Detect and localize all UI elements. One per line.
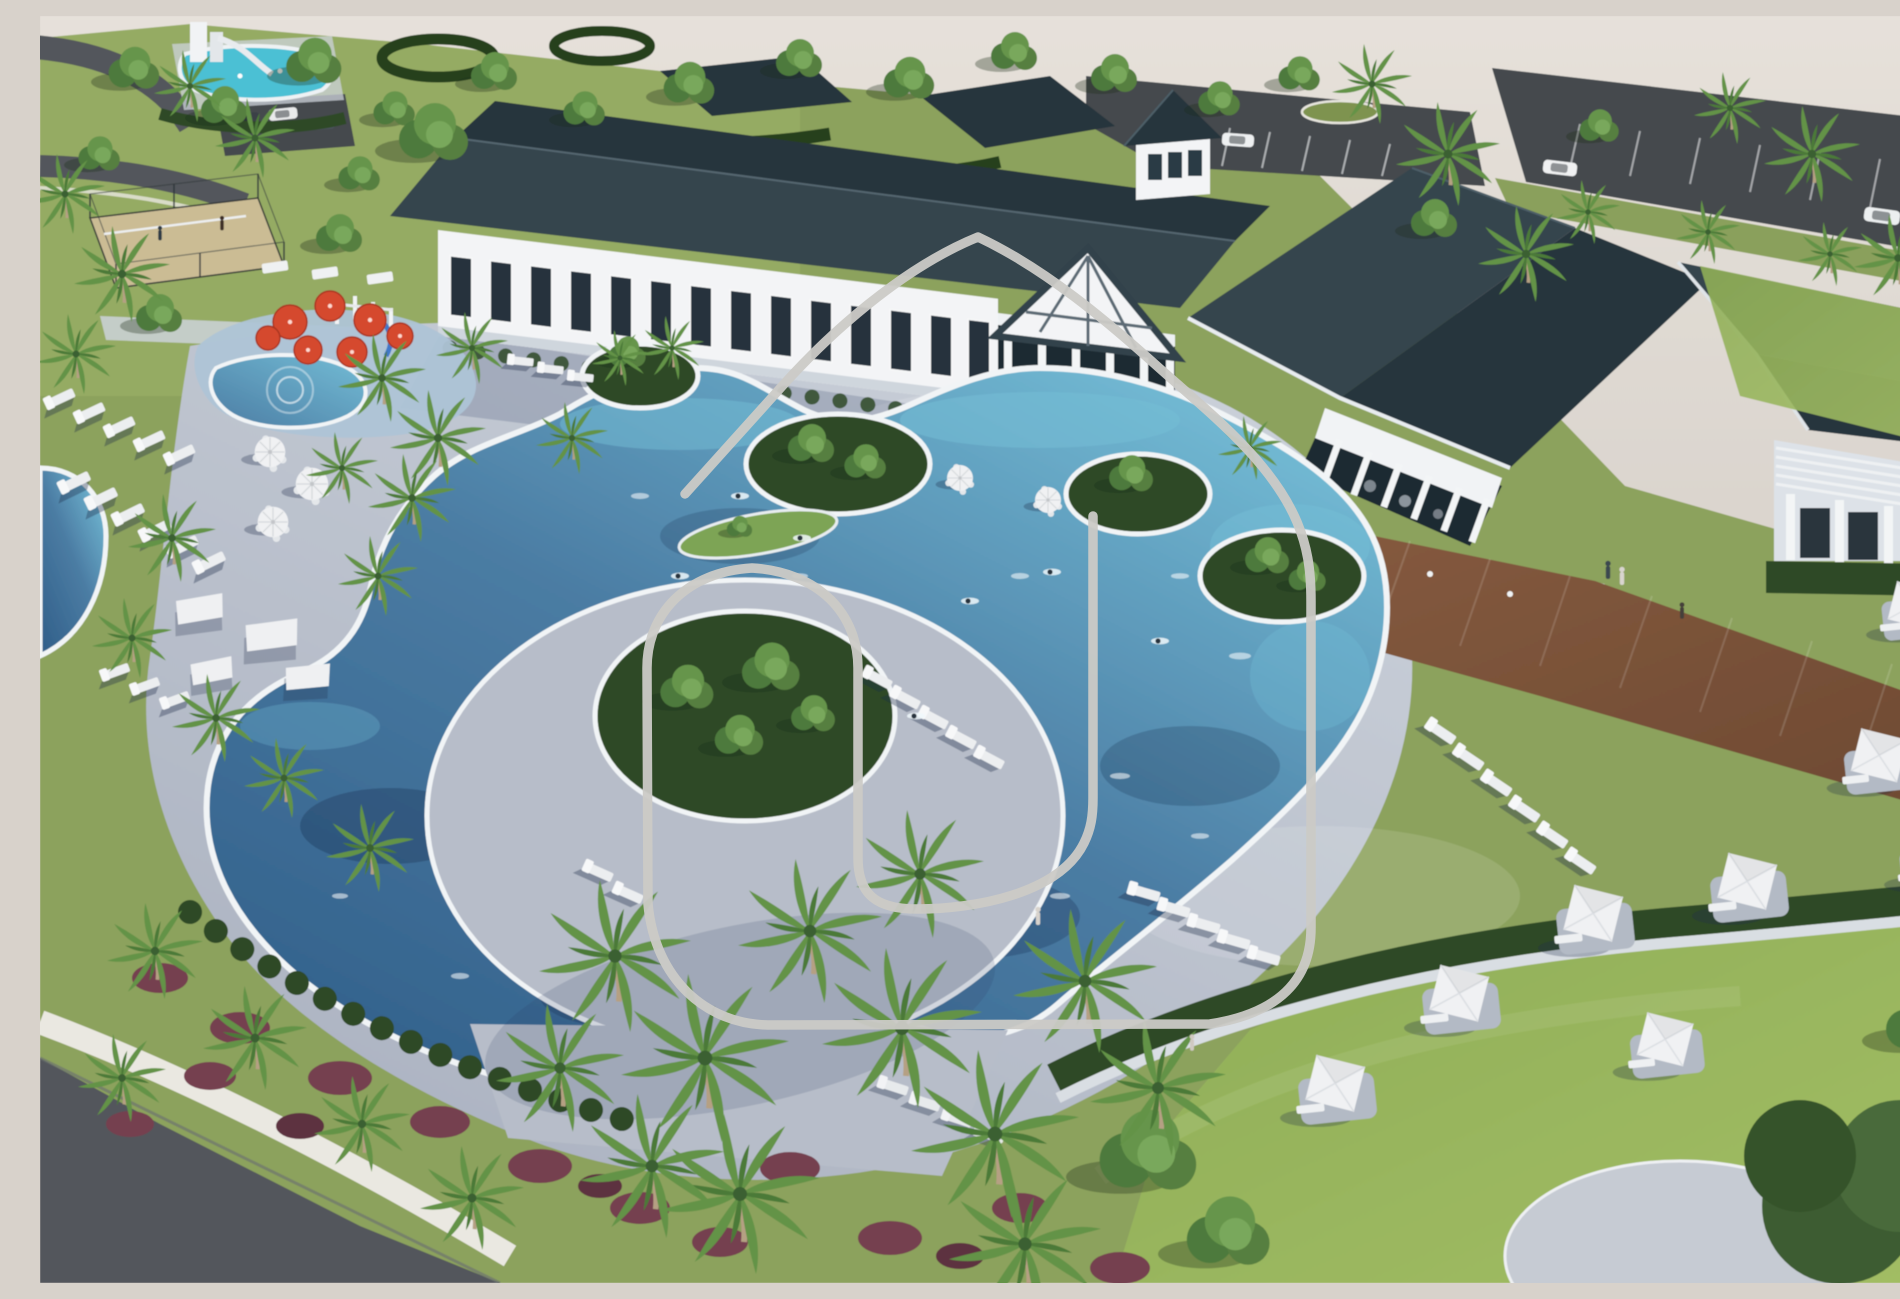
foundation-hedge bbox=[1766, 561, 1900, 596]
scene-svg bbox=[40, 16, 1900, 1283]
parking-island bbox=[1302, 101, 1378, 123]
volleyball-player bbox=[220, 216, 224, 231]
walker-deck bbox=[1190, 1034, 1195, 1050]
resort-aerial-rendering bbox=[40, 16, 1900, 1283]
volleyball-player bbox=[158, 226, 162, 241]
splash-pool bbox=[211, 355, 366, 428]
car bbox=[1222, 132, 1255, 147]
slide-tower bbox=[190, 22, 207, 62]
walker bbox=[1680, 602, 1685, 618]
walker-deck bbox=[1035, 907, 1040, 925]
scene bbox=[40, 16, 1900, 1283]
walker bbox=[1619, 567, 1624, 585]
walker bbox=[1605, 561, 1610, 579]
